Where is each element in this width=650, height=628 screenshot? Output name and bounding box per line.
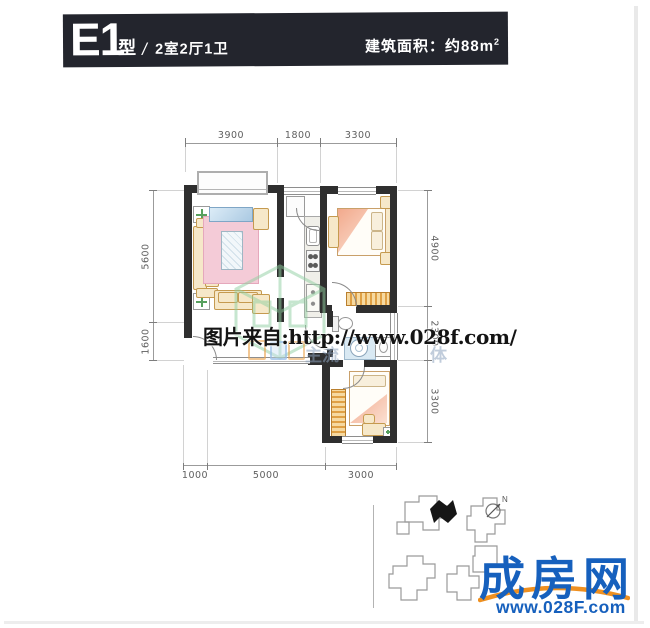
dimension-label: 1800 — [280, 130, 316, 141]
extension-line — [207, 370, 208, 463]
dimension-label: 1000 — [177, 470, 213, 481]
wall — [322, 436, 342, 443]
wall — [320, 186, 338, 194]
scan-edge — [4, 621, 644, 624]
wall — [322, 360, 330, 443]
window — [284, 187, 320, 195]
extension-line — [325, 447, 326, 463]
extension-line — [157, 360, 184, 361]
extension-line — [183, 365, 184, 463]
dimension-line — [185, 143, 397, 144]
wall — [390, 360, 397, 443]
dimension-label: 3300 — [429, 384, 440, 420]
extension-line — [185, 147, 186, 172]
extension-line — [398, 360, 424, 361]
tv-panel — [209, 207, 253, 222]
dimension-label: 5000 — [248, 470, 284, 481]
extension-line — [398, 306, 424, 307]
extension-line — [398, 190, 424, 191]
pillow — [371, 231, 383, 250]
dimension-label: 3900 — [213, 130, 249, 141]
pillow — [371, 212, 383, 231]
extension-line — [396, 447, 397, 463]
divider-line — [373, 505, 374, 608]
extension-line — [157, 190, 184, 191]
wall — [390, 186, 397, 312]
side-cabinet — [253, 208, 269, 230]
window — [342, 436, 373, 444]
dimension-line — [153, 190, 154, 360]
wall — [356, 305, 397, 313]
dresser — [328, 216, 339, 248]
bay-window — [197, 171, 268, 195]
kitchen-door-arc — [296, 208, 319, 231]
dimension-label: 4900 — [429, 231, 440, 267]
chair — [363, 414, 375, 424]
extension-line — [157, 322, 184, 323]
dimension-label: 1600 — [141, 324, 152, 360]
highlighted-unit — [430, 500, 457, 523]
watermark-url-text: 图片来自:http://www.028f.com/ — [203, 321, 517, 350]
wall — [184, 185, 192, 338]
wall — [373, 436, 397, 443]
dimension-label: 3300 — [340, 130, 376, 141]
site-url: www.028F.com — [496, 597, 626, 618]
window — [338, 187, 376, 195]
dimension-label: 5600 — [141, 239, 152, 275]
extension-line — [398, 442, 424, 443]
extension-line — [277, 147, 278, 183]
extension-line — [320, 147, 321, 183]
extension-line — [396, 147, 397, 183]
wardrobe — [331, 389, 346, 437]
floorplan-page: E1 型 / 2室2厅1卫 建筑面积：约88m2 — [0, 0, 650, 628]
compass-label: N — [502, 495, 508, 504]
master-bedroom-door-arc — [332, 282, 357, 307]
dimension-label: 3000 — [343, 470, 379, 481]
dimension-line — [183, 465, 397, 466]
scan-edge — [634, 6, 638, 622]
